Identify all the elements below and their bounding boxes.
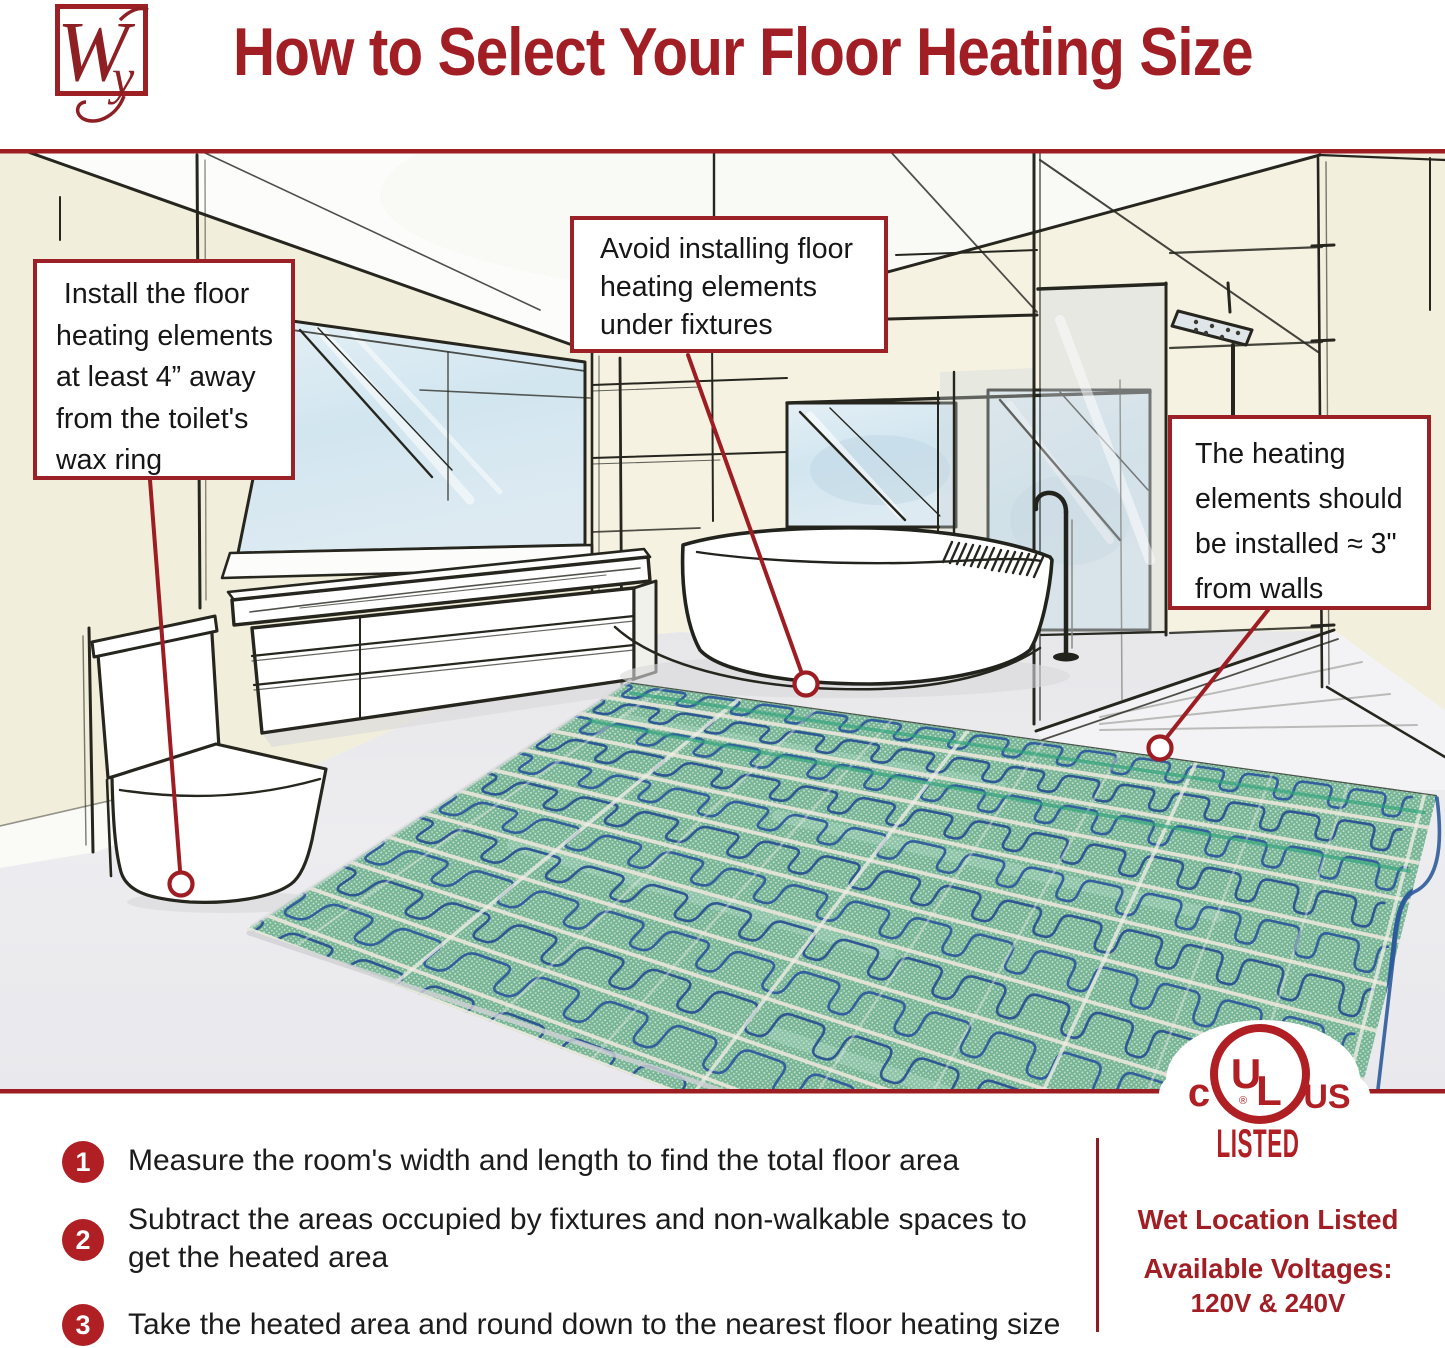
svg-text:®: ® <box>1239 1095 1247 1107</box>
svg-text:c: c <box>1188 1071 1210 1115</box>
svg-text:US: US <box>1303 1078 1350 1116</box>
svg-text:L: L <box>1256 1067 1282 1114</box>
svg-text:y: y <box>107 49 135 105</box>
svg-text:LISTED: LISTED <box>1217 1121 1300 1165</box>
